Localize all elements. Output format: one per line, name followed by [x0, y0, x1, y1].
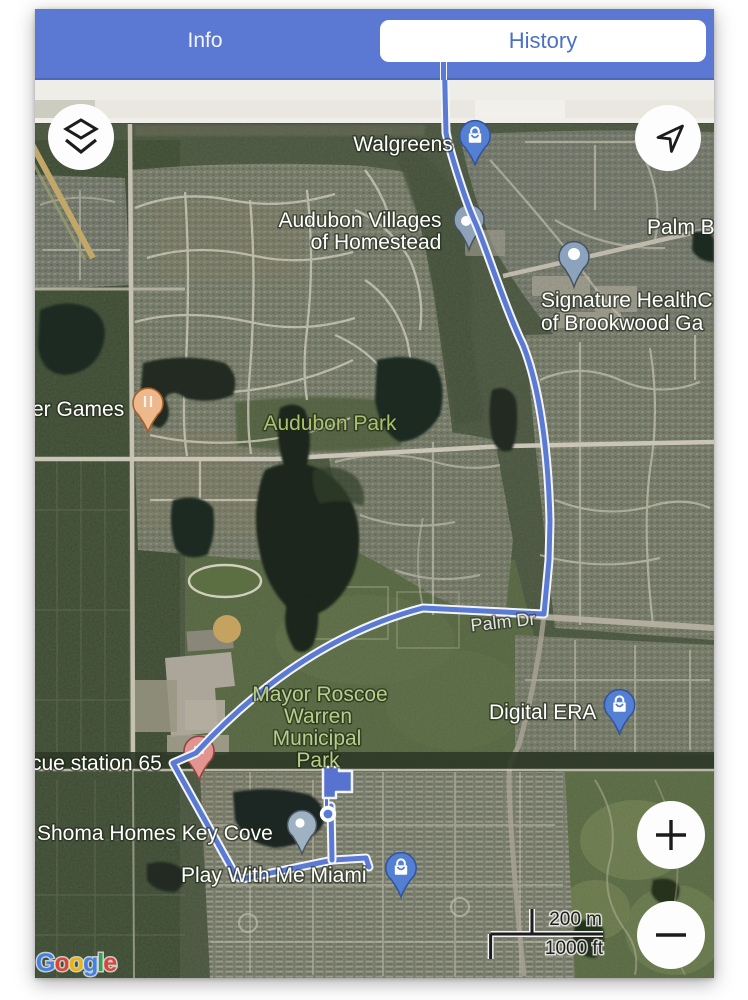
svg-text:Audubon Villages: Audubon Villages [278, 209, 441, 232]
svg-text:Audubon Park: Audubon Park [263, 412, 397, 435]
svg-text:Warren: Warren [284, 705, 352, 728]
svg-text:Park: Park [296, 749, 340, 772]
svg-text:Municipal: Municipal [273, 727, 362, 750]
svg-text:Google: Google [36, 949, 117, 977]
svg-text:Palm B: Palm B [647, 216, 714, 239]
svg-text:Mayor Roscoe: Mayor Roscoe [252, 683, 387, 706]
svg-text:of Homestead: of Homestead [311, 231, 442, 254]
svg-text:Shoma Homes Key Cove: Shoma Homes Key Cove [37, 822, 273, 845]
svg-text:Play With Me Miami: Play With Me Miami [181, 864, 367, 887]
svg-text:er Games: er Games [35, 398, 124, 421]
svg-text:200 m: 200 m [549, 909, 602, 930]
svg-text:Walgreens: Walgreens [353, 133, 453, 156]
svg-text:Digital ERA: Digital ERA [489, 701, 596, 724]
svg-text:of Brookwood Ga: of Brookwood Ga [541, 312, 704, 335]
svg-text:1000 ft: 1000 ft [545, 938, 604, 959]
svg-text:cue station 65: cue station 65 [35, 752, 162, 775]
svg-text:Signature HealthC: Signature HealthC [541, 289, 713, 312]
